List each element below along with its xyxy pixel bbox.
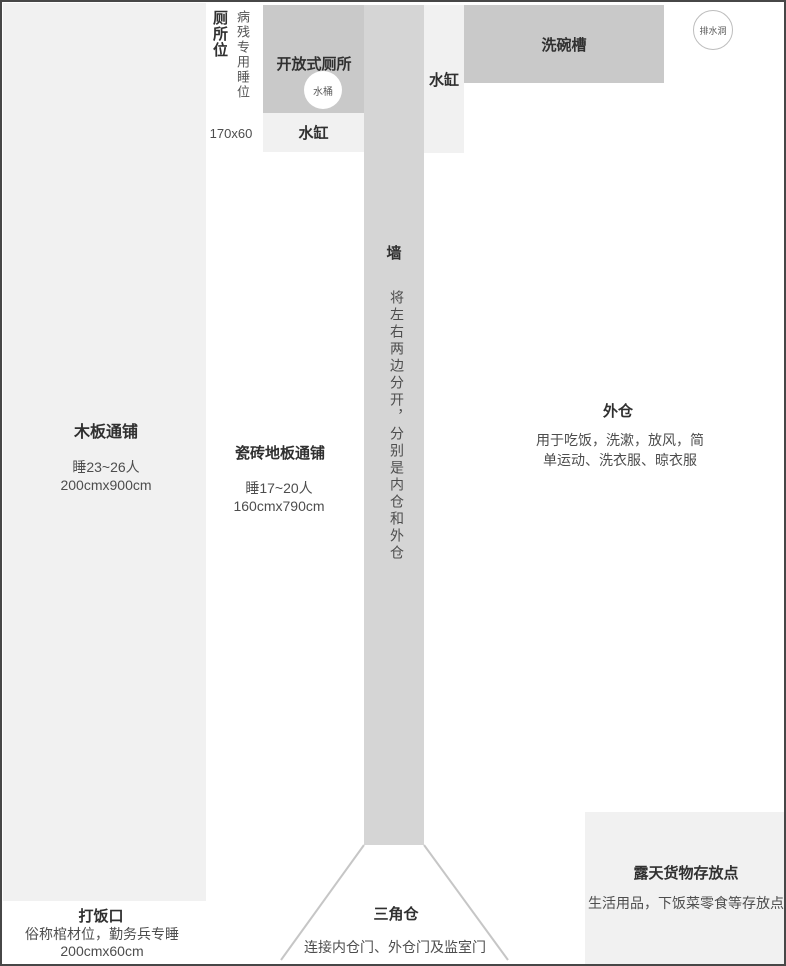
water-vat-right-label: 水缸: [424, 5, 464, 153]
outer-cabin-title: 外仓: [603, 400, 633, 421]
cell-floorplan-diagram: 开放式厕所 水桶 水缸 水缸 洗碗槽 排水洞 厕所位 病残专用睡位 170x60…: [0, 0, 786, 966]
drain-hole-circle: 排水洞: [693, 10, 733, 50]
storage-desc: 生活用品，下饭菜零食等存放点: [588, 894, 784, 913]
water-vat-below-toilet: 水缸: [263, 113, 364, 152]
tile-bed-size: 160cmx790cm: [233, 497, 324, 516]
wood-bed-title: 木板通铺: [74, 418, 138, 442]
tile-bed-title: 瓷砖地板通铺: [235, 442, 325, 463]
wood-bed-size: 200cmx900cm: [60, 476, 151, 495]
wall-desc: 将左右两边分开，分别是内仓和外仓: [387, 290, 407, 562]
tile-bed-capacity: 睡17~20人: [245, 479, 312, 498]
sink-label: 洗碗槽: [464, 5, 664, 83]
wall-title: 墙: [386, 242, 401, 263]
sink-area: 洗碗槽: [464, 5, 664, 83]
water-bucket-circle: 水桶: [304, 71, 342, 109]
toilet-spot-title: 厕所位: [209, 10, 230, 58]
storage-title: 露天货物存放点: [633, 862, 738, 883]
open-toilet-label: 开放式厕所: [276, 53, 351, 74]
water-bucket-label: 水桶: [313, 83, 333, 98]
outer-cabin-desc: 用于吃饭，洗漱，放风，简单运动、洗衣服、晾衣服: [531, 430, 709, 470]
food-port-desc: 俗称棺材位，勤务兵专睡: [25, 926, 179, 943]
drain-hole-label: 排水洞: [699, 24, 726, 37]
water-vat-right-of-wall: 水缸: [424, 5, 464, 153]
toilet-spot-subtitle: 病残专用睡位: [233, 10, 252, 100]
storage-area: [585, 812, 784, 964]
wood-bed-capacity: 睡23~26人: [72, 458, 139, 477]
food-port-title: 打饭口: [78, 905, 123, 926]
triangle-cabin-title: 三角仓: [373, 903, 418, 924]
water-vat-below-label: 水缸: [263, 113, 364, 152]
food-port-size: 200cmx60cm: [60, 943, 143, 960]
wood-bed-area: [3, 3, 206, 901]
triangle-cabin-desc: 连接内仓门、外仓门及监室门: [304, 938, 486, 957]
toilet-spot-size: 170x60: [210, 124, 253, 143]
